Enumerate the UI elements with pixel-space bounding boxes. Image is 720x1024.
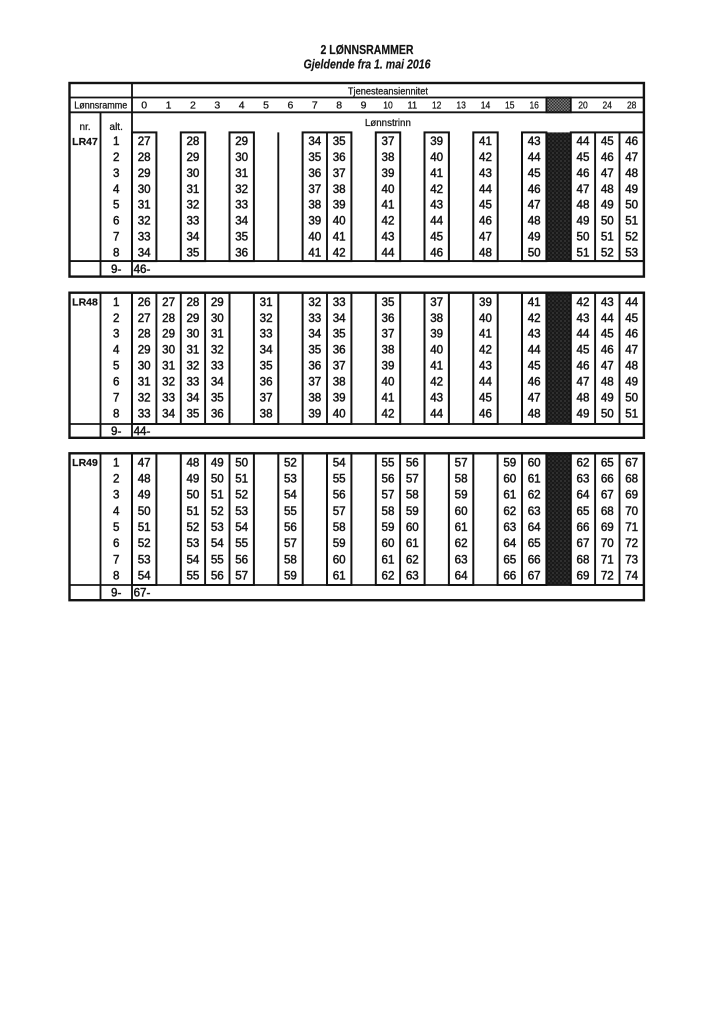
svg-text:54: 54 [333,456,346,469]
svg-text:53: 53 [235,505,248,518]
svg-text:42: 42 [430,183,443,196]
svg-text:33: 33 [138,407,151,420]
svg-text:50: 50 [186,489,199,502]
svg-text:7: 7 [113,392,119,405]
svg-text:45: 45 [479,392,492,405]
svg-text:37: 37 [382,328,395,341]
svg-text:66: 66 [503,570,516,583]
svg-text:11: 11 [408,100,418,112]
svg-text:27: 27 [138,135,151,148]
svg-text:41: 41 [528,296,541,309]
svg-text:38: 38 [308,199,321,212]
svg-text:58: 58 [406,489,419,502]
svg-text:29: 29 [235,135,248,148]
svg-text:9-: 9- [111,263,121,276]
svg-text:49: 49 [601,392,614,405]
svg-text:5: 5 [113,360,119,373]
svg-text:12: 12 [432,100,442,112]
svg-text:35: 35 [333,135,346,148]
svg-text:5: 5 [113,521,119,534]
svg-text:50: 50 [625,199,638,212]
svg-text:44: 44 [430,407,443,420]
svg-text:Lønnsramme: Lønnsramme [74,101,127,112]
svg-text:45: 45 [577,151,590,164]
svg-text:34: 34 [308,135,321,148]
svg-text:27: 27 [138,312,151,325]
svg-text:71: 71 [625,521,638,534]
svg-text:32: 32 [186,199,199,212]
svg-text:40: 40 [382,376,395,389]
svg-text:9-: 9- [111,425,121,438]
svg-text:33: 33 [186,215,199,228]
svg-text:40: 40 [333,407,346,420]
svg-text:71: 71 [601,553,614,566]
svg-text:7: 7 [113,553,119,566]
svg-text:31: 31 [211,328,224,341]
svg-text:40: 40 [382,183,395,196]
svg-text:33: 33 [333,296,346,309]
svg-text:6: 6 [113,215,119,228]
svg-text:35: 35 [211,392,224,405]
svg-text:69: 69 [625,489,638,502]
svg-text:67: 67 [577,537,590,550]
svg-text:49: 49 [528,231,541,244]
svg-text:0: 0 [141,100,147,112]
svg-text:14: 14 [481,100,491,112]
svg-text:28: 28 [138,328,151,341]
svg-text:32: 32 [162,376,175,389]
svg-text:36: 36 [382,312,395,325]
svg-text:24: 24 [603,100,613,112]
svg-text:64: 64 [528,521,541,534]
svg-text:42: 42 [333,246,346,259]
svg-text:35: 35 [333,328,346,341]
svg-text:52: 52 [235,489,248,502]
svg-text:43: 43 [577,312,590,325]
svg-text:43: 43 [382,231,395,244]
svg-text:40: 40 [308,231,321,244]
svg-text:51: 51 [235,473,248,486]
svg-text:4: 4 [239,100,245,112]
svg-text:32: 32 [235,183,248,196]
svg-text:51: 51 [211,489,224,502]
svg-text:68: 68 [577,553,590,566]
svg-text:46: 46 [625,328,638,341]
svg-text:38: 38 [308,392,321,405]
svg-text:50: 50 [601,407,614,420]
svg-text:34: 34 [186,231,199,244]
svg-text:49: 49 [577,407,590,420]
svg-text:58: 58 [455,473,468,486]
svg-text:45: 45 [528,167,541,180]
svg-text:56: 56 [211,570,224,583]
svg-text:50: 50 [528,246,541,259]
svg-text:53: 53 [625,246,638,259]
svg-text:40: 40 [430,151,443,164]
svg-text:42: 42 [430,376,443,389]
svg-text:36: 36 [308,167,321,180]
svg-text:43: 43 [528,135,541,148]
svg-text:60: 60 [406,521,419,534]
svg-text:47: 47 [625,151,638,164]
svg-text:59: 59 [382,521,395,534]
svg-text:38: 38 [260,407,273,420]
svg-text:38: 38 [333,183,346,196]
svg-text:34: 34 [260,344,273,357]
svg-text:52: 52 [186,521,199,534]
svg-text:29: 29 [138,344,151,357]
svg-text:16: 16 [529,100,539,112]
svg-text:49: 49 [577,215,590,228]
svg-text:35: 35 [186,407,199,420]
svg-text:36: 36 [308,360,321,373]
svg-text:8: 8 [113,407,119,420]
svg-text:61: 61 [455,521,468,534]
svg-text:44: 44 [625,296,638,309]
svg-text:63: 63 [577,473,590,486]
svg-text:36: 36 [333,344,346,357]
svg-text:63: 63 [503,521,516,534]
svg-text:68: 68 [625,473,638,486]
svg-text:64: 64 [577,489,590,502]
svg-text:57: 57 [333,505,346,518]
svg-text:44: 44 [577,135,590,148]
svg-text:47: 47 [577,376,590,389]
svg-text:41: 41 [430,167,443,180]
svg-text:29: 29 [162,328,175,341]
svg-text:62: 62 [528,489,541,502]
svg-text:48: 48 [601,376,614,389]
svg-text:52: 52 [138,537,151,550]
svg-text:41: 41 [308,246,321,259]
svg-text:8: 8 [113,570,119,583]
svg-text:55: 55 [284,505,297,518]
svg-text:1: 1 [166,100,172,112]
svg-text:6: 6 [113,537,119,550]
svg-text:4: 4 [113,344,120,357]
svg-text:60: 60 [503,473,516,486]
svg-text:32: 32 [308,296,321,309]
svg-text:39: 39 [382,360,395,373]
svg-text:35: 35 [308,344,321,357]
svg-text:42: 42 [479,344,492,357]
svg-text:4: 4 [113,505,120,518]
svg-text:56: 56 [235,553,248,566]
svg-text:32: 32 [260,312,273,325]
svg-text:59: 59 [284,570,297,583]
svg-text:2: 2 [113,312,119,325]
svg-text:38: 38 [333,376,346,389]
svg-text:nr.: nr. [79,122,90,133]
svg-text:45: 45 [577,344,590,357]
svg-text:47: 47 [601,360,614,373]
svg-text:63: 63 [455,553,468,566]
svg-text:61: 61 [406,537,419,550]
svg-text:31: 31 [138,376,151,389]
svg-text:Tjenesteansiennitet: Tjenesteansiennitet [348,86,428,97]
svg-text:45: 45 [479,199,492,212]
svg-text:39: 39 [382,167,395,180]
svg-text:74: 74 [625,570,638,583]
svg-text:28: 28 [162,312,175,325]
svg-text:8: 8 [113,246,119,259]
svg-text:62: 62 [503,505,516,518]
svg-text:32: 32 [138,392,151,405]
svg-text:10: 10 [383,100,393,112]
svg-text:LR49: LR49 [72,457,98,469]
svg-text:45: 45 [601,328,614,341]
svg-text:37: 37 [333,360,346,373]
svg-text:30: 30 [162,344,175,357]
svg-text:45: 45 [601,135,614,148]
svg-text:44: 44 [382,246,395,259]
svg-text:2 LØNNSRAMMER: 2 LØNNSRAMMER [321,42,414,57]
svg-text:53: 53 [211,521,224,534]
svg-text:34: 34 [186,392,199,405]
svg-text:39: 39 [479,296,492,309]
svg-text:9: 9 [361,100,367,112]
svg-text:41: 41 [430,360,443,373]
svg-text:3: 3 [214,100,220,112]
svg-text:52: 52 [284,456,297,469]
svg-text:42: 42 [479,151,492,164]
svg-text:57: 57 [382,489,395,502]
svg-text:59: 59 [406,505,419,518]
svg-text:44: 44 [528,344,541,357]
svg-text:53: 53 [186,537,199,550]
svg-text:44: 44 [601,312,614,325]
svg-text:33: 33 [138,231,151,244]
svg-text:9-: 9- [111,587,121,600]
svg-text:57: 57 [455,456,468,469]
svg-text:54: 54 [284,489,297,502]
svg-text:58: 58 [284,553,297,566]
svg-text:33: 33 [308,312,321,325]
svg-text:61: 61 [382,553,395,566]
svg-text:61: 61 [528,473,541,486]
svg-text:44: 44 [479,183,492,196]
svg-text:70: 70 [601,537,614,550]
svg-text:Lønnstrinn: Lønnstrinn [365,118,411,129]
svg-text:46: 46 [625,135,638,148]
svg-text:55: 55 [382,456,395,469]
svg-text:54: 54 [138,570,151,583]
svg-text:51: 51 [601,231,614,244]
svg-text:28: 28 [138,151,151,164]
svg-text:33: 33 [162,392,175,405]
svg-text:43: 43 [479,360,492,373]
svg-text:30: 30 [235,151,248,164]
svg-text:55: 55 [186,570,199,583]
svg-text:45: 45 [625,312,638,325]
svg-text:46: 46 [577,167,590,180]
svg-text:64: 64 [455,570,468,583]
svg-text:41: 41 [479,328,492,341]
svg-text:39: 39 [430,328,443,341]
svg-text:34: 34 [308,328,321,341]
svg-text:31: 31 [186,344,199,357]
svg-text:29: 29 [138,167,151,180]
svg-text:53: 53 [284,473,297,486]
svg-text:62: 62 [577,456,590,469]
svg-text:68: 68 [601,505,614,518]
svg-text:60: 60 [333,553,346,566]
svg-text:43: 43 [479,167,492,180]
svg-text:1: 1 [113,135,119,148]
svg-text:59: 59 [333,537,346,550]
svg-text:61: 61 [333,570,346,583]
svg-text:47: 47 [528,392,541,405]
svg-text:3: 3 [113,328,119,341]
svg-text:58: 58 [333,521,346,534]
svg-text:13: 13 [456,100,466,112]
svg-text:47: 47 [479,231,492,244]
svg-text:66: 66 [577,521,590,534]
svg-text:30: 30 [186,328,199,341]
svg-text:29: 29 [186,312,199,325]
svg-text:56: 56 [333,489,346,502]
svg-text:59: 59 [455,489,468,502]
svg-text:51: 51 [186,505,199,518]
svg-text:48: 48 [601,183,614,196]
svg-text:28: 28 [186,135,199,148]
svg-text:61: 61 [503,489,516,502]
svg-text:47: 47 [138,456,151,469]
svg-text:73: 73 [625,553,638,566]
svg-text:65: 65 [503,553,516,566]
svg-text:57: 57 [235,570,248,583]
svg-text:33: 33 [260,328,273,341]
svg-text:33: 33 [211,360,224,373]
svg-text:34: 34 [138,246,151,259]
svg-text:37: 37 [308,376,321,389]
svg-text:36: 36 [235,246,248,259]
svg-text:35: 35 [235,231,248,244]
svg-text:15: 15 [505,100,515,112]
svg-text:62: 62 [382,570,395,583]
svg-text:45: 45 [528,360,541,373]
svg-text:60: 60 [528,456,541,469]
svg-text:72: 72 [601,570,614,583]
svg-text:41: 41 [382,392,395,405]
svg-text:44: 44 [430,215,443,228]
svg-text:46: 46 [479,215,492,228]
svg-text:31: 31 [260,296,273,309]
svg-text:LR47: LR47 [72,136,98,148]
svg-text:7: 7 [312,100,318,112]
svg-text:67-: 67- [134,587,151,600]
svg-text:54: 54 [186,553,199,566]
svg-text:41: 41 [382,199,395,212]
svg-text:56: 56 [406,456,419,469]
svg-text:36: 36 [260,376,273,389]
svg-text:48: 48 [577,199,590,212]
svg-text:6: 6 [113,376,119,389]
svg-text:49: 49 [601,199,614,212]
svg-text:8: 8 [336,100,342,112]
svg-text:51: 51 [138,521,151,534]
svg-text:1: 1 [113,296,119,309]
svg-text:46: 46 [601,151,614,164]
svg-text:43: 43 [430,392,443,405]
svg-text:48: 48 [528,215,541,228]
svg-text:27: 27 [162,296,175,309]
svg-text:33: 33 [186,376,199,389]
svg-text:3: 3 [113,167,119,180]
svg-text:alt.: alt. [110,122,123,133]
svg-text:50: 50 [138,505,151,518]
svg-text:47: 47 [528,199,541,212]
svg-text:32: 32 [138,215,151,228]
svg-text:32: 32 [211,344,224,357]
svg-text:50: 50 [577,231,590,244]
svg-text:72: 72 [625,537,638,550]
svg-text:48: 48 [625,360,638,373]
svg-text:49: 49 [138,489,151,502]
svg-text:60: 60 [382,537,395,550]
svg-text:57: 57 [406,473,419,486]
svg-text:54: 54 [211,537,224,550]
svg-text:5: 5 [113,199,119,212]
svg-text:44: 44 [479,376,492,389]
svg-text:67: 67 [601,489,614,502]
svg-text:28: 28 [627,100,637,112]
svg-text:2: 2 [190,100,196,112]
svg-text:47: 47 [601,167,614,180]
svg-text:65: 65 [528,537,541,550]
svg-text:44-: 44- [134,425,151,438]
svg-text:51: 51 [625,215,638,228]
svg-text:48: 48 [479,246,492,259]
svg-text:46: 46 [577,360,590,373]
svg-text:48: 48 [186,456,199,469]
svg-text:32: 32 [186,360,199,373]
svg-text:57: 57 [284,537,297,550]
svg-text:54: 54 [235,521,248,534]
svg-text:41: 41 [333,231,346,244]
svg-text:28: 28 [186,296,199,309]
svg-text:43: 43 [528,328,541,341]
svg-text:5: 5 [263,100,269,112]
svg-text:63: 63 [528,505,541,518]
svg-text:31: 31 [162,360,175,373]
svg-text:39: 39 [430,135,443,148]
svg-text:36: 36 [211,407,224,420]
svg-text:46: 46 [528,183,541,196]
svg-text:2: 2 [113,151,119,164]
svg-text:42: 42 [528,312,541,325]
svg-text:46: 46 [430,246,443,259]
svg-text:34: 34 [162,407,175,420]
svg-text:38: 38 [430,312,443,325]
svg-text:55: 55 [211,553,224,566]
svg-text:67: 67 [625,456,638,469]
svg-text:66: 66 [601,473,614,486]
svg-text:49: 49 [211,456,224,469]
svg-text:48: 48 [528,407,541,420]
svg-text:30: 30 [211,312,224,325]
svg-text:65: 65 [601,456,614,469]
svg-text:40: 40 [479,312,492,325]
svg-text:69: 69 [577,570,590,583]
svg-text:37: 37 [308,183,321,196]
svg-text:66: 66 [528,553,541,566]
svg-text:44: 44 [528,151,541,164]
svg-text:62: 62 [406,553,419,566]
svg-text:34: 34 [235,215,248,228]
svg-text:37: 37 [260,392,273,405]
svg-text:49: 49 [186,473,199,486]
